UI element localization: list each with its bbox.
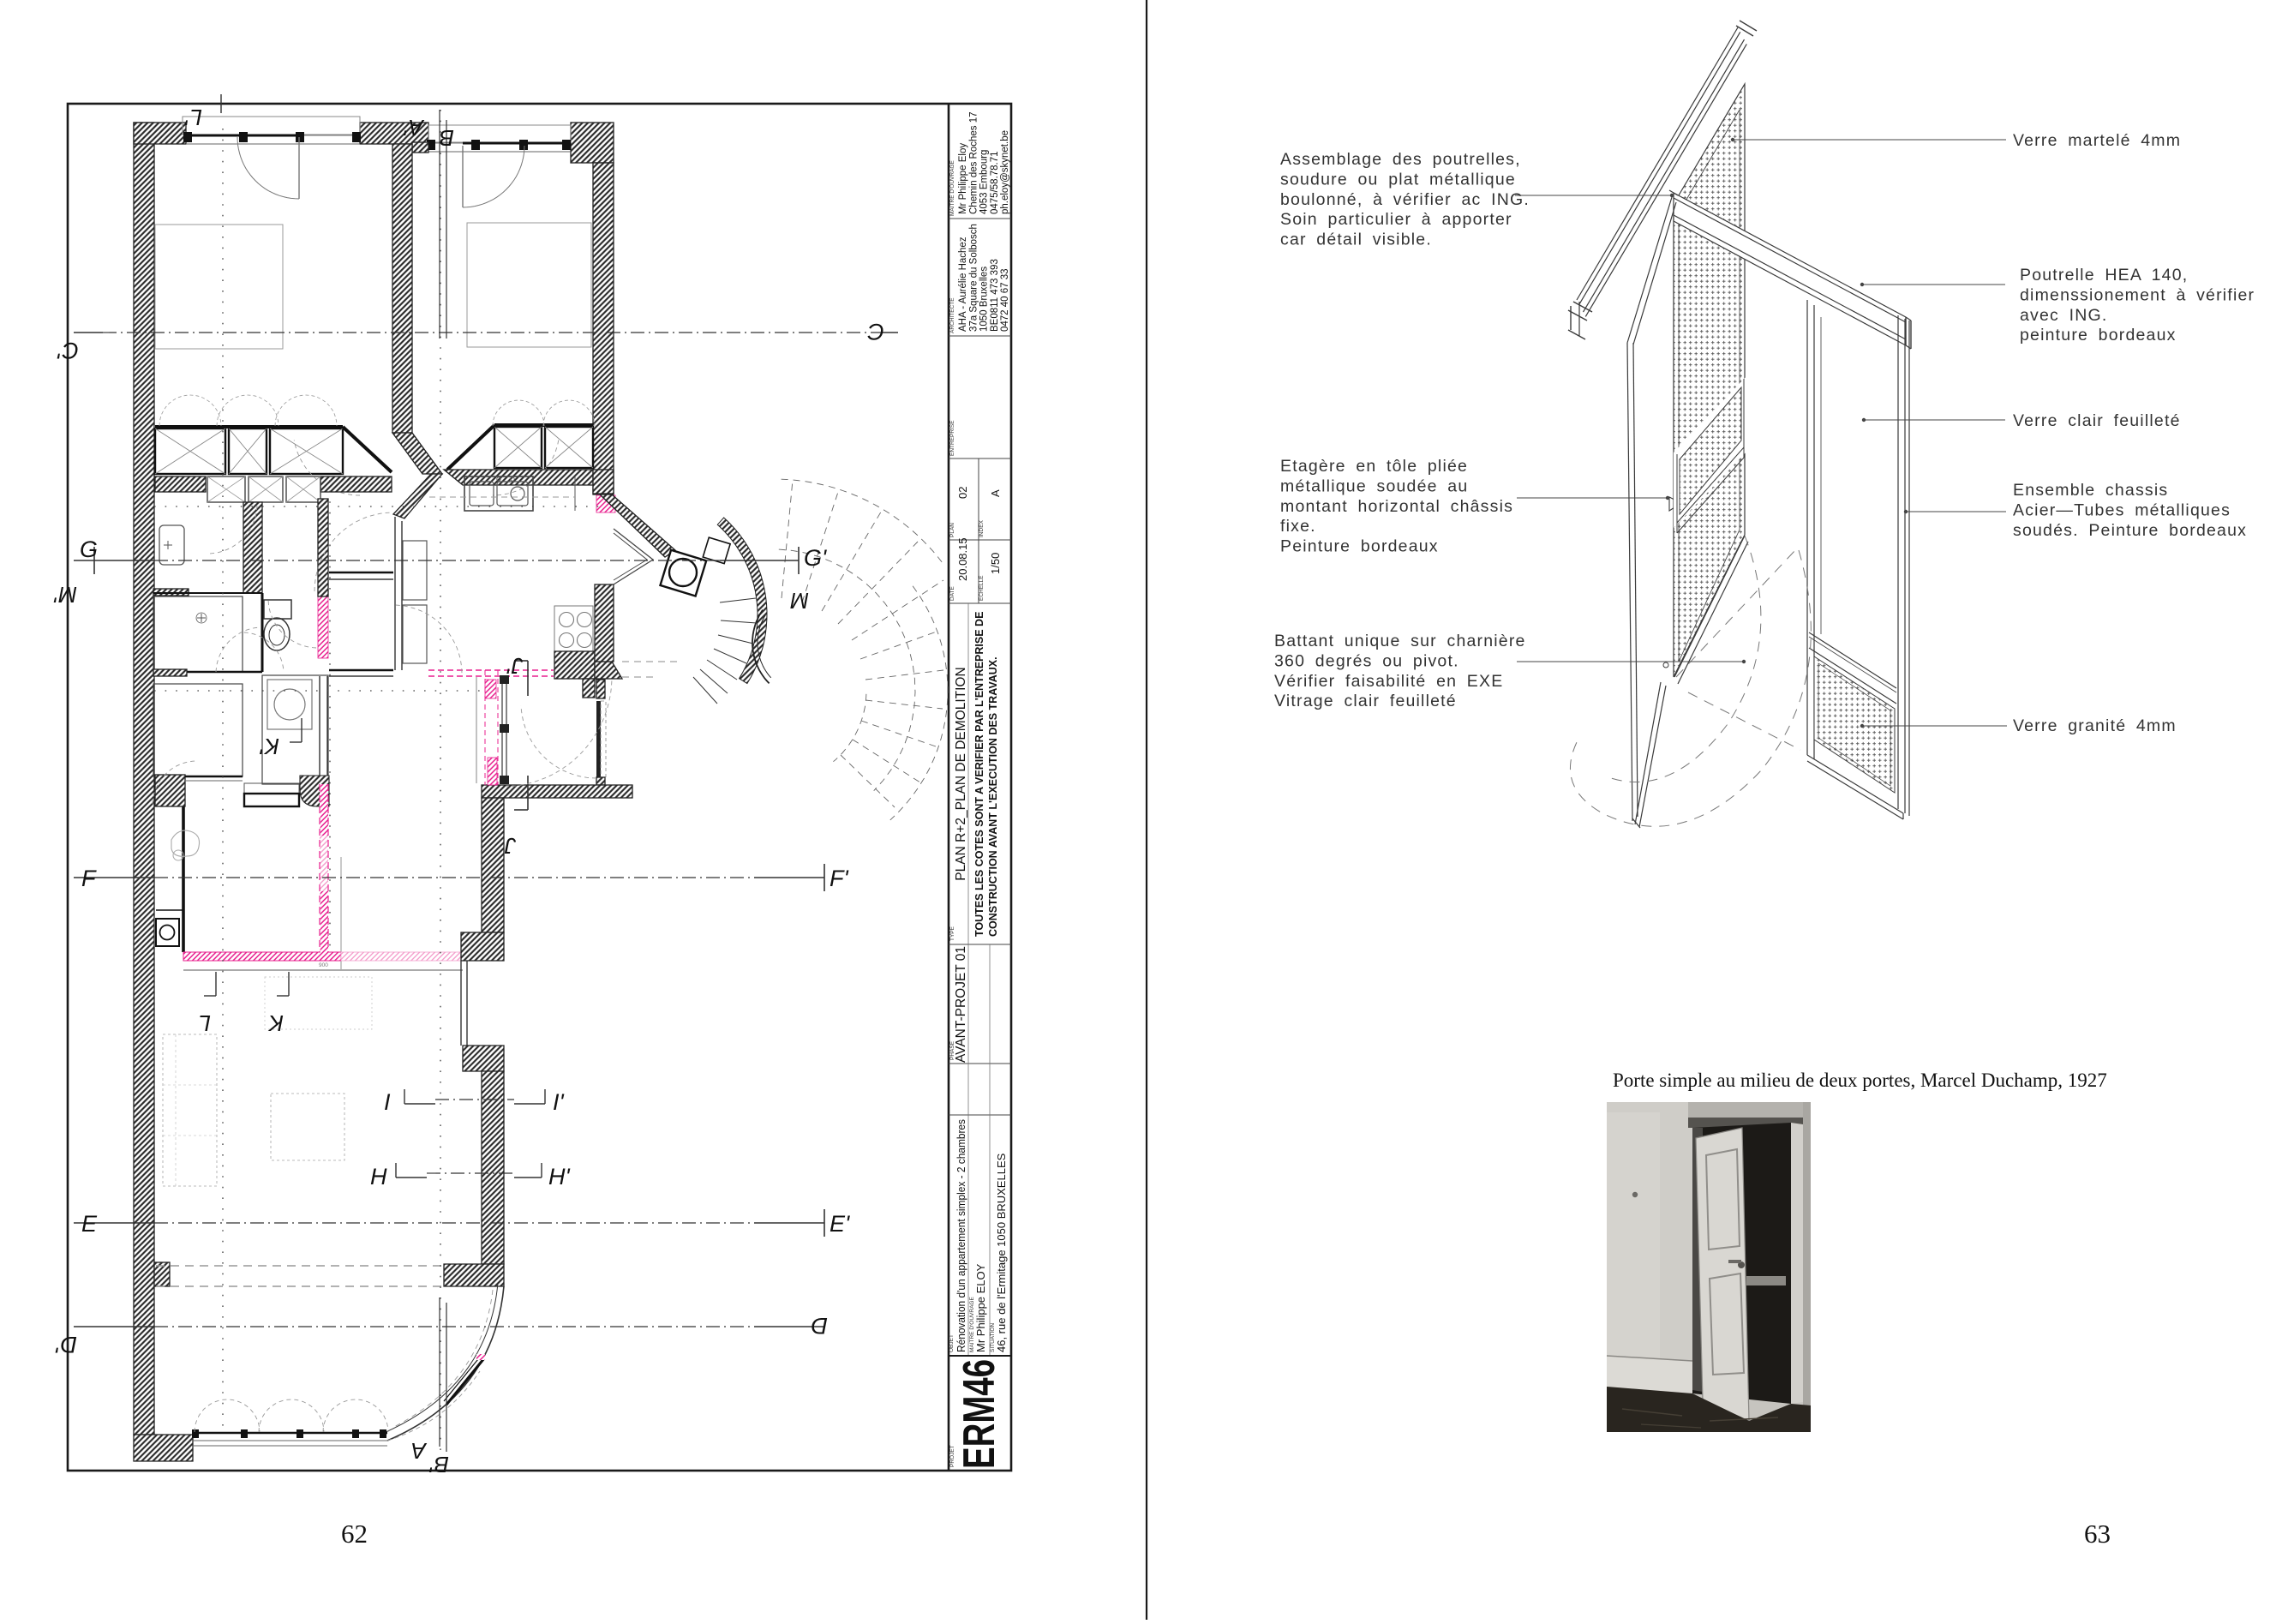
svg-text:E': E' (830, 1211, 850, 1237)
svg-text:car détail visible.: car détail visible. (1280, 231, 1432, 249)
svg-text:B': B' (429, 1452, 449, 1477)
svg-text:ARCHITECTE: ARCHITECTE (949, 297, 955, 333)
svg-text:A': A' (404, 115, 425, 141)
svg-text:Verre granité 4mm: Verre granité 4mm (2013, 716, 2177, 735)
svg-text:ECHELLE: ECHELLE (979, 575, 985, 601)
svg-text:62: 62 (341, 1519, 368, 1549)
svg-text:D: D (812, 1313, 829, 1339)
svg-text:F': F' (830, 866, 848, 891)
svg-text:I': I' (553, 1089, 565, 1115)
svg-text:46, rue de l'Ermitage 1050 BRU: 46, rue de l'Ermitage 1050 BRUXELLES (995, 1153, 1008, 1352)
svg-text:INDEX: INDEX (979, 519, 985, 537)
svg-text:C': C' (57, 338, 79, 363)
svg-text:dimenssionement à vérifier: dimenssionement à vérifier (2020, 285, 2255, 304)
svg-text:F: F (81, 866, 97, 891)
svg-text:Vitrage clair feuilleté: Vitrage clair feuilleté (1274, 692, 1457, 710)
svg-text:B: B (440, 125, 454, 151)
svg-text:AVANT-PROJET 01: AVANT-PROJET 01 (954, 946, 968, 1063)
svg-text:PLAN R+2_PLAN DE DEMOLITION: PLAN R+2_PLAN DE DEMOLITION (954, 667, 968, 880)
svg-text:Rénovation d'un appartement si: Rénovation d'un appartement simplex - 2 … (955, 1119, 967, 1352)
svg-text:DATE: DATE (949, 585, 955, 601)
svg-text:G: G (80, 536, 98, 562)
svg-text:Chemin des Roches 17: Chemin des Roches 17 (968, 111, 979, 214)
svg-text:Vérifier faisabilité en EXE: Vérifier faisabilité en EXE (1274, 672, 1503, 691)
svg-text:TYPE: TYPE (949, 926, 955, 941)
svg-text:M: M (790, 588, 809, 614)
svg-text:02: 02 (956, 487, 969, 499)
svg-text:H': H' (548, 1164, 570, 1190)
svg-text:M': M' (53, 582, 77, 608)
svg-text:Assemblage des poutrelles,: Assemblage des poutrelles, (1280, 150, 1521, 169)
svg-text:fixe.: fixe. (1280, 517, 1316, 536)
svg-text:Mr Philippe Eloy: Mr Philippe Eloy (958, 143, 968, 214)
svg-text:63: 63 (2084, 1519, 2111, 1549)
svg-text:métallique soudée au: métallique soudée au (1280, 476, 1468, 495)
svg-text:D': D' (56, 1332, 77, 1357)
svg-text:soudure ou plat métallique: soudure ou plat métallique (1280, 170, 1516, 189)
svg-text:PLAN: PLAN (949, 523, 955, 537)
svg-text:J': J' (506, 653, 524, 679)
svg-text:BE0811 473 393: BE0811 473 393 (990, 259, 1000, 332)
svg-text:TOUTES LES COTES SONT A VERIFI: TOUTES LES COTES SONT A VERIFIER PAR L'E… (973, 612, 985, 937)
svg-text:A: A (411, 1438, 428, 1464)
svg-text:ERM46: ERM46 (955, 1359, 1004, 1469)
svg-text:OBJET: OBJET (949, 1334, 955, 1352)
svg-text:Verre clair feuilleté: Verre clair feuilleté (2013, 411, 2181, 430)
svg-text:Poutrelle HEA 140,: Poutrelle HEA 140, (2020, 266, 2188, 285)
svg-text:MAITRE D'OUVRAGE: MAITRE D'OUVRAGE (949, 160, 955, 216)
svg-text:ENTREPRISE: ENTREPRISE (949, 420, 955, 456)
svg-text:Verre martelé 4mm: Verre martelé 4mm (2013, 131, 2181, 150)
svg-text:Soin particulier à apporter: Soin particulier à apporter (1280, 210, 1512, 229)
svg-text:360 degrés ou pivot.: 360 degrés ou pivot. (1274, 651, 1459, 670)
svg-text:K: K (267, 1010, 284, 1036)
svg-text:peinture bordeaux: peinture bordeaux (2020, 326, 2177, 345)
svg-text:E: E (81, 1211, 98, 1237)
svg-text:Battant unique sur charnièr: Battant unique sur charnière (1274, 632, 1526, 650)
svg-text:boulonné, à vérifier ac IN: boulonné, à vérifier ac ING. (1280, 190, 1530, 209)
svg-text:AHA - Aurélie Hachez: AHA - Aurélie Hachez (958, 237, 968, 332)
svg-text:C: C (867, 319, 884, 345)
svg-text:900: 900 (319, 962, 328, 968)
svg-text:L: L (199, 1010, 211, 1036)
svg-text:K': K' (260, 734, 279, 759)
svg-text:0472 40 67 33: 0472 40 67 33 (1000, 268, 1010, 332)
svg-text:I: I (384, 1089, 391, 1115)
svg-text:Etagère en tôle pliée: Etagère en tôle pliée (1280, 457, 1468, 476)
svg-text:Porte simple au milieu de deux: Porte simple au milieu de deux portes, M… (1613, 1070, 2107, 1091)
svg-text:Mr Philippe ELOY: Mr Philippe ELOY (974, 1263, 987, 1352)
svg-text:0475/58.78.71: 0475/58.78.71 (990, 151, 1000, 214)
svg-text:soudés. Peinture bordeaux: soudés. Peinture bordeaux (2013, 521, 2247, 540)
svg-text:avec ING.: avec ING. (2020, 306, 2108, 325)
svg-text:4053 Embourg: 4053 Embourg (979, 150, 990, 214)
svg-text:1050 Bruxelles: 1050 Bruxelles (979, 267, 990, 332)
svg-text:37a Square du Solbosch: 37a Square du Solbosch (968, 224, 979, 332)
svg-text:H: H (370, 1164, 387, 1190)
svg-text:Ensemble chassis: Ensemble chassis (2013, 481, 2168, 500)
svg-text:J: J (504, 833, 517, 859)
svg-text:ph.eloy@skynet.be: ph.eloy@skynet.be (1000, 130, 1010, 214)
svg-text:L': L' (185, 105, 202, 130)
svg-text:G': G' (804, 545, 827, 571)
svg-text:montant horizontal châssis: montant horizontal châssis (1280, 497, 1513, 516)
svg-text:20.08.15: 20.08.15 (956, 537, 969, 581)
svg-text:CONSTRUCTION AVANT L'EXECUTION: CONSTRUCTION AVANT L'EXECUTION DES TRAVA… (987, 656, 999, 937)
svg-text:Acier—Tubes métalliques: Acier—Tubes métalliques (2013, 500, 2231, 519)
svg-text:1/50: 1/50 (989, 553, 1002, 574)
svg-text:Peinture bordeaux: Peinture bordeaux (1280, 537, 1439, 556)
svg-text:A: A (989, 489, 1002, 497)
